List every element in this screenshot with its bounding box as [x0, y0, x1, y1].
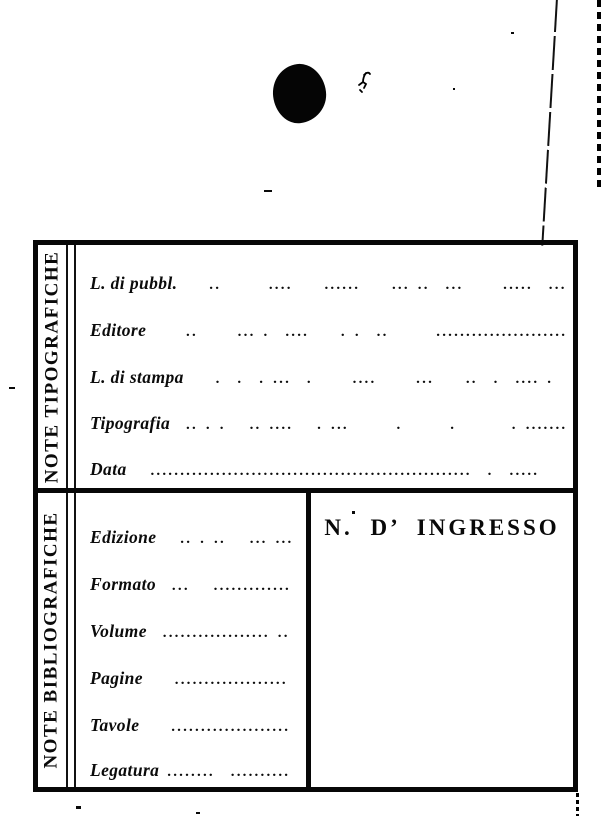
- field-label: Pagine: [90, 667, 143, 689]
- dotted-fill-line: ... ..............: [156, 575, 291, 595]
- field-row-formato: Formato ... ..............: [90, 573, 291, 595]
- side-label-tipografiche: NOTE TIPOGRAFICHE: [38, 245, 66, 488]
- field-label: Tipografia: [90, 412, 170, 434]
- dotted-fill-line: .................. ..: [147, 622, 290, 642]
- dotted-fill-line: ........................................…: [127, 460, 540, 480]
- field-row-tipografia: Tipografia .. . . .. .... . ... . . . ..…: [90, 412, 567, 434]
- field-label: Data: [90, 458, 127, 480]
- field-row-legatura: Legatura ........ ..........: [90, 759, 291, 781]
- speck-dot: [76, 806, 81, 809]
- field-label: Volume: [90, 620, 147, 642]
- speck-dot: [511, 32, 514, 34]
- speck-dot: [453, 88, 455, 90]
- field-row-pagine: Pagine ...................: [90, 667, 291, 689]
- side-label-text: NOTE TIPOGRAFICHE: [41, 250, 63, 483]
- fold-line: [541, 0, 558, 246]
- dotted-fill-line: ...................: [143, 669, 288, 689]
- ink-blob: [270, 61, 330, 126]
- field-label: Edizione: [90, 526, 156, 548]
- side-label-column-rule: [66, 245, 76, 787]
- dotted-fill-line: .. ... . .... . . .. ...................…: [146, 321, 567, 341]
- dotted-fill-line: .. . .. ... ......: [156, 528, 291, 548]
- accession-card-table: NOTE TIPOGRAFICHE NOTE BIBLIOGRAFICHE L.…: [33, 240, 578, 792]
- right-edge-marks-bottom: [576, 793, 579, 816]
- right-edge-marks-top: [597, 0, 601, 192]
- field-row-data: Data ...................................…: [90, 458, 567, 480]
- field-row-edizione: Edizione .. . .. ... ......: [90, 526, 291, 548]
- field-row-editore: Editore .. ... . .... . . .. ...........…: [90, 319, 567, 341]
- dotted-fill-line: .. .... ...... ... .. ... ..... ...: [177, 274, 566, 294]
- dotted-fill-line: . . . ... . .... ... .. . .... . . ..: [184, 368, 567, 388]
- side-label-bibliografiche: NOTE BIBLIOGRAFICHE: [38, 493, 66, 787]
- dotted-fill-line: .. . . .. .... . ... . . . ...........: [170, 414, 567, 434]
- field-row-volume: Volume .................. ..: [90, 620, 291, 642]
- side-label-text: NOTE BIBLIOGRAFICHE: [41, 511, 63, 768]
- field-row-l-di-stampa: L. di stampa . . . ... . .... ... .. . .…: [90, 366, 567, 388]
- field-label: Editore: [90, 319, 146, 341]
- field-row-l-di-pubbl: L. di pubbl. .. .... ...... ... .. ... .…: [90, 272, 567, 294]
- ink-squiggle-mark: [353, 68, 375, 96]
- speck-dash: [9, 387, 15, 389]
- field-label: L. di stampa: [90, 366, 184, 388]
- speck-dot: [196, 812, 200, 814]
- field-label: Formato: [90, 573, 156, 595]
- field-label: L. di pubbl.: [90, 272, 177, 294]
- field-label: Legatura: [90, 759, 159, 781]
- dotted-fill-line: ........ ..........: [159, 761, 290, 781]
- dotted-fill-line: ....................: [139, 716, 290, 736]
- ingresso-cell: N. D’ INGRESSO: [311, 493, 573, 787]
- field-row-tavole: Tavole ....................: [90, 714, 291, 736]
- field-label: Tavole: [90, 714, 139, 736]
- speck-dash: [264, 190, 272, 192]
- scanned-library-card: NOTE TIPOGRAFICHE NOTE BIBLIOGRAFICHE L.…: [0, 0, 603, 816]
- ingresso-title: N. D’ INGRESSO: [311, 515, 573, 541]
